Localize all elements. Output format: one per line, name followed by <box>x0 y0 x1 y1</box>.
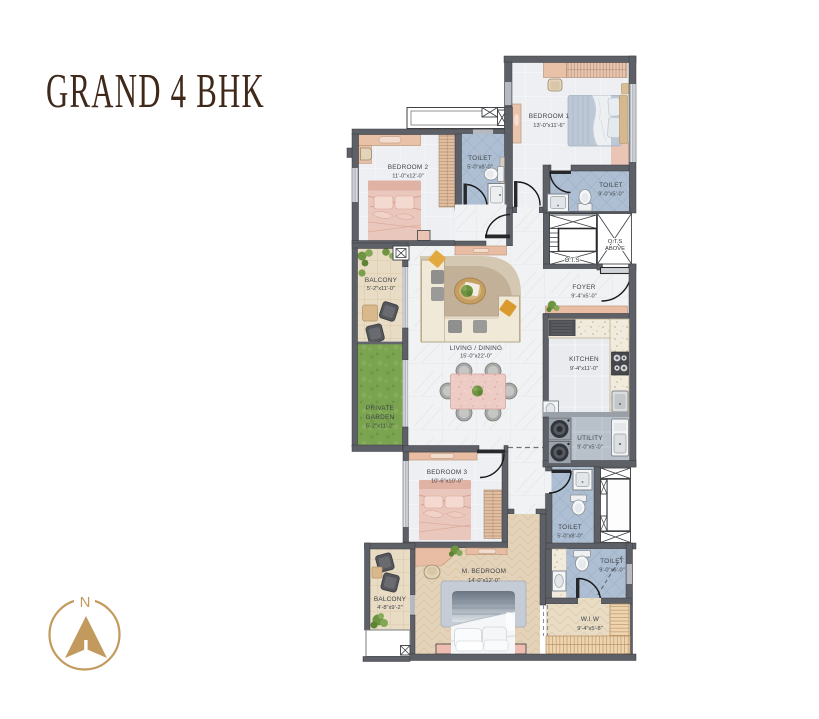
svg-text:W.I.W: W.I.W <box>581 616 600 623</box>
svg-text:5'-0"x8'-0": 5'-0"x8'-0" <box>467 165 493 171</box>
svg-text:BEDROOM 1: BEDROOM 1 <box>529 113 570 120</box>
svg-text:BEDROOM 3: BEDROOM 3 <box>427 469 468 476</box>
svg-text:GRAND 4 BHK: GRAND 4 BHK <box>46 63 265 118</box>
svg-text:UTILITY: UTILITY <box>577 435 603 442</box>
svg-text:O.T.S: O.T.S <box>608 239 623 245</box>
svg-text:ABOVE: ABOVE <box>605 246 625 252</box>
svg-text:GARDEN: GARDEN <box>366 414 395 421</box>
svg-text:BALCONY: BALCONY <box>374 596 407 603</box>
svg-text:11'-0"x12'-0": 11'-0"x12'-0" <box>392 174 423 180</box>
svg-text:FOYER: FOYER <box>572 284 595 291</box>
svg-text:BALCONY: BALCONY <box>365 277 398 284</box>
svg-text:BEDROOM 2: BEDROOM 2 <box>388 164 429 171</box>
svg-text:9'-4"x5'-8": 9'-4"x5'-8" <box>577 626 603 632</box>
svg-text:O.T.S: O.T.S <box>564 258 579 264</box>
svg-text:13'-0"x11'-6": 13'-0"x11'-6" <box>533 123 564 129</box>
svg-text:TOILET: TOILET <box>599 182 623 189</box>
svg-text:9'-4"x5'-0": 9'-4"x5'-0" <box>571 294 597 300</box>
svg-text:9'-0"x5'-0": 9'-0"x5'-0" <box>598 192 624 198</box>
svg-text:9'-0"x5'-0": 9'-0"x5'-0" <box>577 445 603 451</box>
svg-text:TOILET: TOILET <box>558 524 582 531</box>
svg-text:9'-0"x6'-0": 9'-0"x6'-0" <box>599 568 625 574</box>
svg-text:TOILET: TOILET <box>600 558 624 565</box>
svg-text:KITCHEN: KITCHEN <box>569 356 599 363</box>
svg-text:M. BEDROOM: M. BEDROOM <box>462 568 506 575</box>
svg-text:5'-0"x8'-0": 5'-0"x8'-0" <box>557 534 583 540</box>
svg-text:9'-4"x11'-0": 9'-4"x11'-0" <box>570 366 598 372</box>
svg-text:10'-6"x10'-0": 10'-6"x10'-0" <box>431 479 463 485</box>
svg-text:N: N <box>80 594 91 611</box>
svg-text:PRIVATE: PRIVATE <box>366 405 394 412</box>
svg-text:15'-0"x22'-0": 15'-0"x22'-0" <box>460 354 492 360</box>
svg-text:4'-8"x9'-2": 4'-8"x9'-2" <box>377 605 403 611</box>
svg-text:14'-0"x12'-0": 14'-0"x12'-0" <box>468 578 500 584</box>
svg-text:LIVING / DINING: LIVING / DINING <box>450 345 502 352</box>
svg-text:TOILET: TOILET <box>468 155 492 162</box>
svg-text:5'-2"x11'-0": 5'-2"x11'-0" <box>367 286 395 292</box>
svg-text:5'-2"x11'-2": 5'-2"x11'-2" <box>366 424 394 430</box>
